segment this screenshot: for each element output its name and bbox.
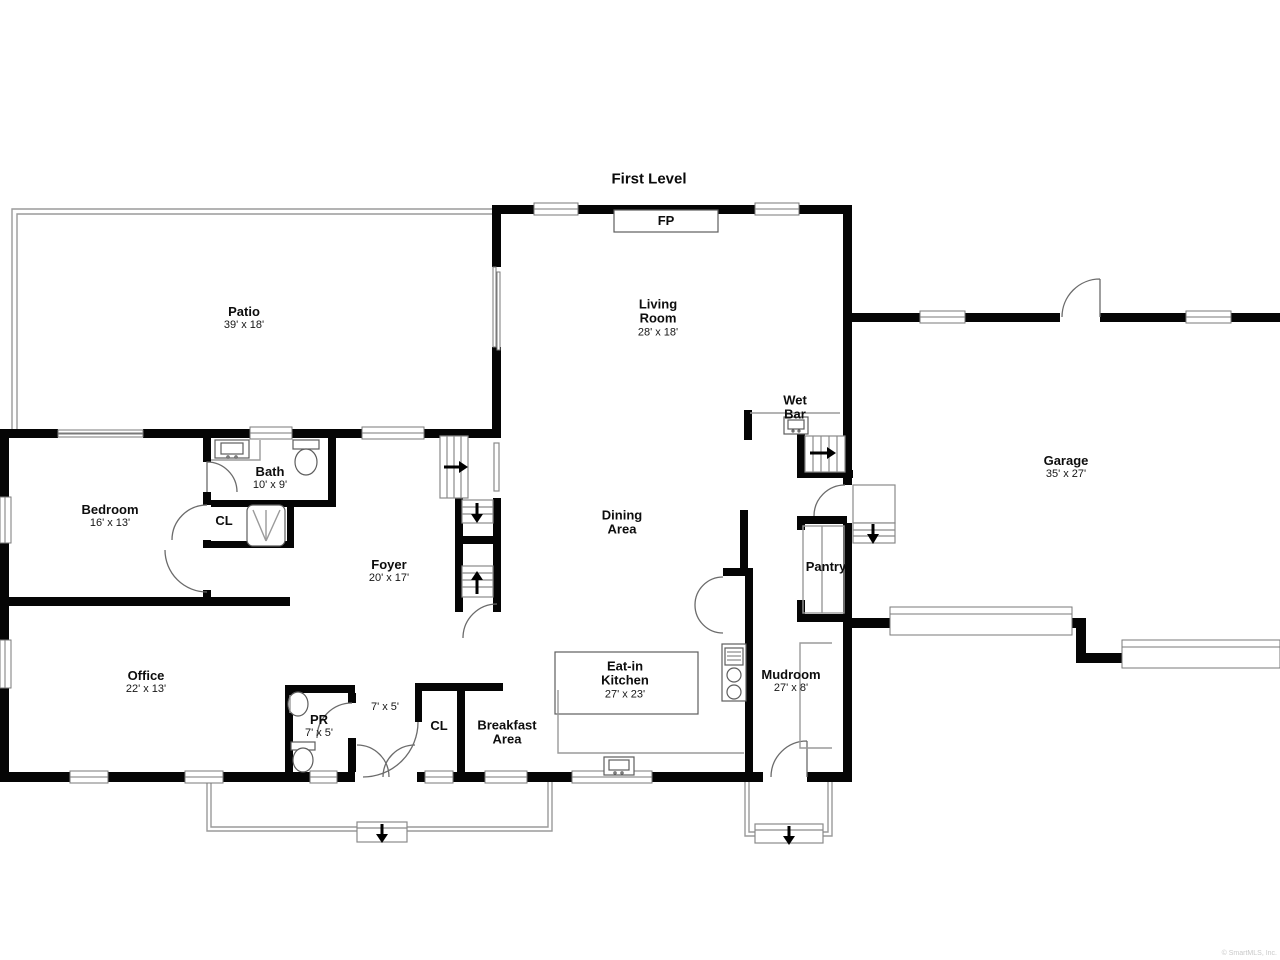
bedroom-door (165, 550, 207, 592)
room-name: Bath (256, 464, 285, 479)
room-label-pantry: Pantry (806, 560, 846, 574)
garage-hall-door (814, 485, 845, 516)
garage-door (890, 607, 1072, 635)
room-name: CL (430, 718, 447, 733)
room-dims: 28' x 18' (631, 326, 685, 338)
room-dims: 27' x 8' (761, 682, 820, 694)
window (70, 771, 108, 783)
label-hall-closet-dims: 7' x 5' (371, 701, 399, 713)
garage-door (1122, 640, 1280, 668)
page-title: First Level (611, 171, 686, 188)
stove (722, 644, 746, 701)
patio-slider (58, 430, 143, 437)
window (755, 203, 799, 215)
label-fireplace: FP (658, 214, 675, 228)
mudroom-bench (800, 643, 832, 748)
room-label-foyer: Foyer 20' x 17' (369, 558, 409, 584)
watermark: © SmartMLS, Inc. (1222, 950, 1277, 957)
room-name: Garage (1044, 453, 1089, 468)
stair-door (463, 604, 497, 638)
living-room-slider (493, 267, 500, 350)
room-label-living-room: Living Room 28' x 18' (631, 298, 685, 339)
kitchen-french-door-top (695, 577, 723, 605)
garage-entry-door (1062, 279, 1100, 317)
bath-vanity-sink (211, 440, 260, 460)
room-name: Pantry (806, 559, 846, 574)
hall-closet-door (363, 722, 418, 777)
kitchen-french-door-bottom (695, 605, 723, 633)
mudroom-door (771, 741, 807, 777)
label-bath-closet: CL (215, 514, 232, 528)
window (185, 771, 223, 783)
room-dims: 35' x 27' (1044, 468, 1089, 480)
room-name: Office (128, 668, 165, 683)
room-dims: 20' x 17' (369, 572, 409, 584)
window (250, 427, 292, 439)
room-label-wet-bar: Wet Bar (777, 394, 813, 423)
stairs (357, 436, 895, 845)
room-name: Living Room (639, 297, 677, 326)
room-label-mudroom: Mudroom 27' x 8' (761, 668, 820, 694)
room-label-garage: Garage 35' x 27' (1044, 454, 1089, 480)
room-name: Breakfast Area (477, 718, 536, 747)
label-hall-closet-cl: CL (430, 719, 447, 733)
room-name: Patio (228, 304, 260, 319)
window (425, 771, 453, 783)
room-name: PR (310, 712, 328, 727)
room-dims: 7' x 5' (305, 727, 333, 739)
room-name: CL (215, 513, 232, 528)
room-label-patio: Patio 39' x 18' (224, 305, 264, 331)
room-label-bath: Bath 10' x 9' (253, 465, 287, 491)
window (920, 311, 965, 323)
entry-door-left (357, 745, 389, 777)
room-label-dining-area: Dining Area (596, 509, 648, 538)
room-name: Dining Area (602, 508, 642, 537)
bath-toilet (293, 440, 319, 475)
room-label-office: Office 22' x 13' (126, 669, 166, 695)
shower (247, 505, 285, 546)
room-name: Bedroom (81, 502, 138, 517)
room-label-kitchen: Eat-in Kitchen 27' x 23' (595, 660, 655, 701)
window (362, 427, 424, 439)
room-name: Mudroom (761, 667, 820, 682)
room-name: Foyer (371, 557, 406, 572)
room-dims: 39' x 18' (224, 319, 264, 331)
room-dims: 27' x 23' (595, 688, 655, 700)
kitchen-sink (604, 757, 634, 775)
bath-door (207, 462, 237, 492)
window (310, 771, 337, 783)
window (485, 771, 527, 783)
room-name: Eat-in Kitchen (601, 659, 649, 688)
window (534, 203, 578, 215)
window (1186, 311, 1231, 323)
floor-plan: First Level Patio 39' x 18' Living Room … (0, 0, 1280, 960)
window (0, 497, 11, 543)
room-label-breakfast-area: Breakfast Area (470, 719, 544, 748)
room-dims: 22' x 13' (126, 683, 166, 695)
room-name: FP (658, 213, 675, 228)
pr-toilet (291, 742, 315, 772)
room-name: Wet Bar (783, 393, 807, 422)
bath-closet-door (172, 505, 207, 540)
room-label-bedroom: Bedroom 16' x 13' (81, 503, 138, 529)
room-label-powder-room: PR 7' x 5' (305, 713, 333, 739)
room-dims: 16' x 13' (81, 517, 138, 529)
window (0, 640, 11, 688)
room-dims: 10' x 9' (253, 479, 287, 491)
